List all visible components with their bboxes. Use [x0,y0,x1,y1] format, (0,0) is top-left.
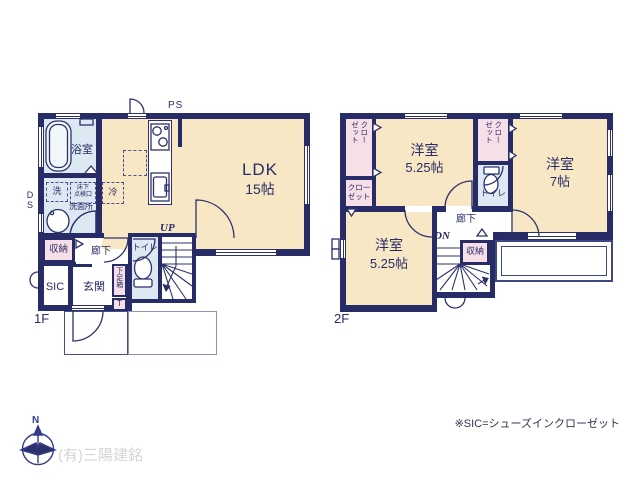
bedroom-top-size: 5.25帖 [376,161,473,175]
stairwell-window-arc [445,298,465,308]
bedroom-bottom-door-arc [405,210,432,237]
rear-door-arc [130,99,144,113]
storage-1f-label: 収納 [42,245,75,255]
entrance-door-arc [73,311,103,341]
entrance-label: 玄関 [73,281,115,293]
closet-top-right-label: クロー ゼット [478,121,508,159]
stove-icon [151,124,169,150]
laundry-label: 洗 [46,187,68,197]
hallway-1f-label: 廊下 [76,246,126,257]
washroom-door-arc [70,211,96,237]
bedroom-bottom-label: 洋室 [346,238,432,253]
floor-hatch-label: 床下 点検口 [70,185,96,198]
dn-label: DN [434,230,450,242]
sic-label: SIC [40,281,70,293]
shoebox-label: 下足箱 [115,267,123,288]
sink-icon [151,173,169,201]
floorplan-linework [0,0,640,480]
ldk-label: LDK [230,161,290,180]
bath-door-mark [85,166,97,173]
ldk-size-label: 15帖 [230,182,290,197]
sic-note: ※SIC=シューズインクローゼット [455,418,620,430]
closet-mid-left-label: クロー ゼット [346,183,372,202]
bedroom-top-label: 洋室 [376,143,473,158]
washbasin-icon [47,210,69,233]
bedroom-right-label: 洋室 [513,157,607,172]
compass-icon [21,426,55,465]
closet-col1: クロー [360,121,368,174]
toilet-1f-label: トイレ [128,243,162,252]
closet-col2: ゼット [350,121,358,174]
floorplan-canvas: PS D S 浴室 洗 床下 点検口 洗面所 冷 LDK 15帖 収納 廊下 ト… [0,0,640,480]
bath-shelf-icon [80,119,93,125]
sic-window-arc [30,272,38,288]
closet-line2: ゼット [348,192,371,201]
washroom-label: 洗面所 [62,203,100,212]
storage-2f-label: 収納 [460,247,490,257]
hatch-line2: 点検口 [74,192,92,198]
closet-top-left-label: クロー ゼット [346,121,372,174]
bedroom-right-door-arc [512,210,539,237]
company-name: (有)三陽建銘 [58,448,143,465]
closet-col1: クロー [494,121,502,159]
floor2-label: 2F [334,312,349,326]
up-label: UP [160,222,175,234]
bath-label: 浴室 [62,144,102,156]
fridge-label: 冷 [102,188,124,198]
toilet-2f-label: トイレ [478,189,508,198]
stairs-1f-treads [162,243,192,299]
bedroom-bottom-size: 5.25帖 [346,257,432,271]
ds-letter-2: S [27,200,33,210]
toilet-1f-icon [134,257,152,287]
ps-label: PS [168,100,183,111]
compass-north-label: N [32,415,39,426]
closet-line1: クロー [348,183,371,192]
ds-label: D S [24,191,36,211]
hallway-2f-label: 廊下 [440,214,492,225]
ds-letter-1: D [27,190,34,200]
shoebox-t-label: T [112,300,127,309]
bedroom-right-size: 7帖 [513,175,607,189]
floor1-label: 1F [34,312,49,326]
closet-col2: ゼット [484,121,492,159]
ldk-door-arc [196,200,234,238]
bedroom-top-door-arc [445,181,472,209]
hatch-line1: 床下 [77,185,89,191]
casement-window-marks [332,239,339,259]
